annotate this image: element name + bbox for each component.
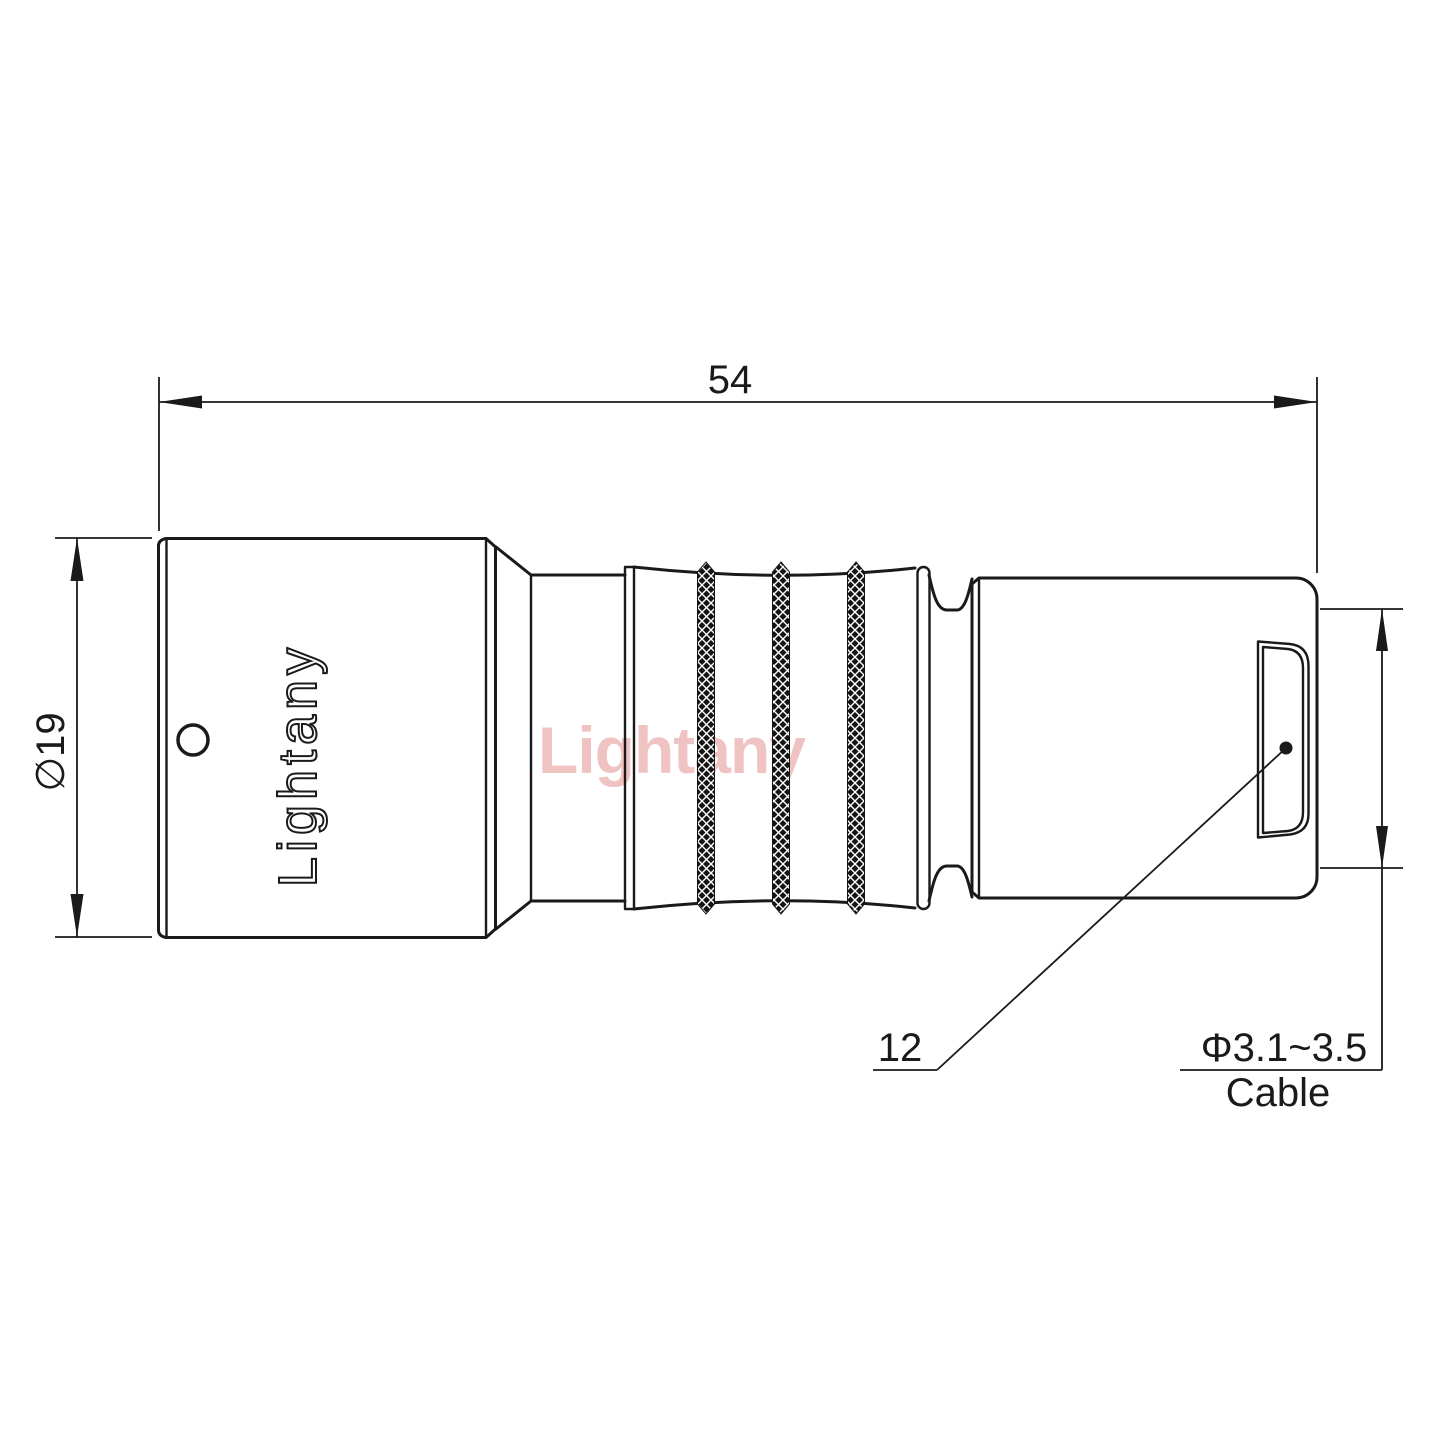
front-shell: Lightany bbox=[159, 539, 496, 938]
drawing-canvas: Lightany Lightany bbox=[0, 0, 1440, 1440]
leader-dot-icon bbox=[1280, 742, 1293, 755]
arrowhead-right-icon bbox=[1274, 396, 1317, 409]
knurl-band-3 bbox=[848, 562, 865, 914]
mounting-hole bbox=[178, 725, 208, 755]
overall-length-value: 54 bbox=[708, 358, 753, 402]
callout-rear-part: 12 bbox=[873, 742, 1293, 1071]
front-diameter-value: ∅19 bbox=[29, 712, 73, 791]
cable-bushing-inner bbox=[1263, 647, 1303, 833]
arrowhead-top-icon bbox=[1376, 609, 1388, 651]
rear-body-outline bbox=[972, 578, 1317, 898]
dimension-rear-cable: Φ3.1~3.5 Cable bbox=[1180, 609, 1403, 1115]
watermark-text: Lightany bbox=[538, 713, 806, 787]
rear-groove bbox=[929, 575, 972, 901]
cable-range-value: Φ3.1~3.5 bbox=[1201, 1026, 1367, 1070]
groove-bottom-profile bbox=[929, 866, 972, 901]
dimension-overall-length: 54 bbox=[159, 358, 1317, 573]
rear-diameter-value: 12 bbox=[878, 1026, 923, 1070]
groove-top-profile bbox=[929, 575, 972, 610]
knurl-band-2 bbox=[773, 562, 790, 914]
rear-body bbox=[972, 578, 1317, 898]
arrowhead-left-icon bbox=[159, 396, 202, 409]
arrowhead-bottom-icon bbox=[71, 894, 84, 937]
barrel-end-cap bbox=[918, 567, 930, 909]
cable-bushing-outer bbox=[1258, 642, 1309, 838]
leader-line bbox=[937, 748, 1286, 1070]
taper-top-line bbox=[496, 547, 531, 575]
cable-label: Cable bbox=[1226, 1071, 1331, 1115]
taper-bottom-line bbox=[496, 901, 531, 929]
body-marking-text: Lightany bbox=[268, 643, 328, 887]
technical-drawing: Lightany Lightany bbox=[0, 0, 1440, 1440]
arrowhead-bottom-icon bbox=[1376, 826, 1388, 868]
arrowhead-top-icon bbox=[71, 538, 84, 581]
knurl-band-1 bbox=[698, 562, 715, 914]
dimension-front-diameter: ∅19 bbox=[29, 538, 152, 937]
